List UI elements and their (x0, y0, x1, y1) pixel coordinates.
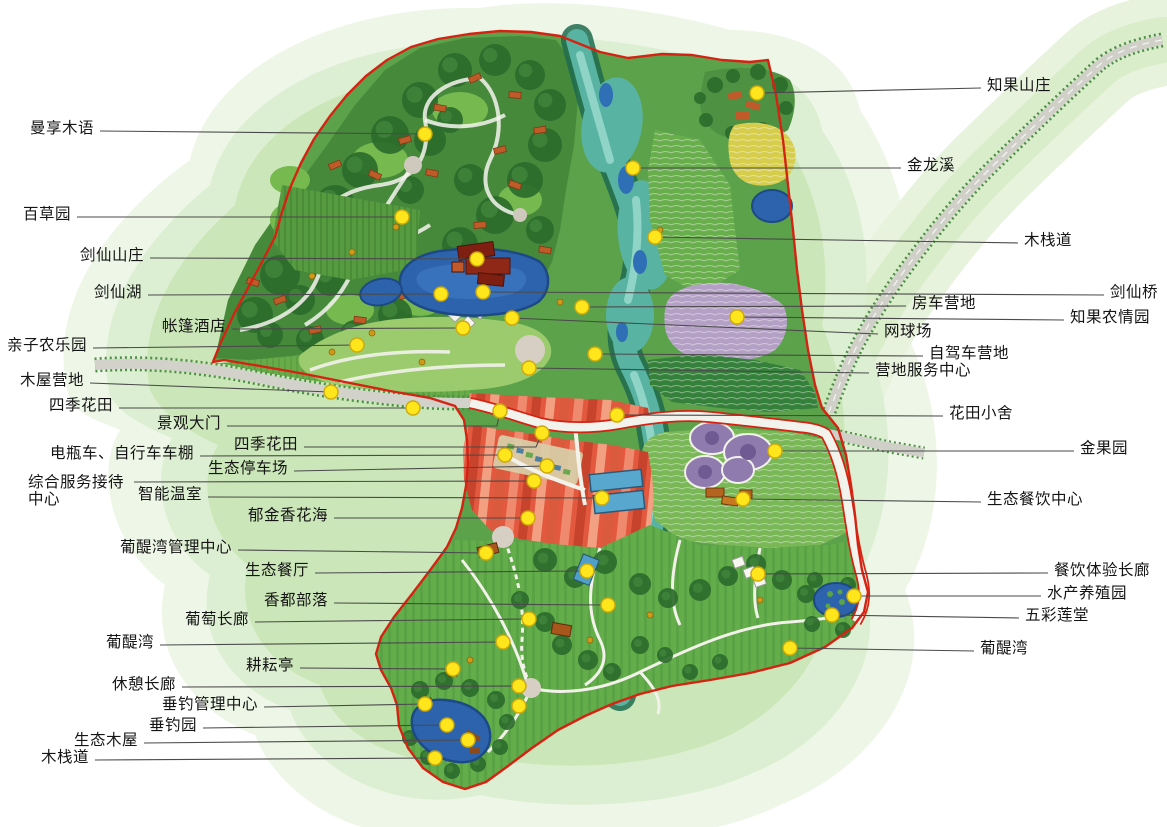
map-label: 休憩长廊 (112, 676, 176, 693)
map-label: 剑仙桥 (1110, 284, 1158, 301)
poi-marker (626, 161, 640, 175)
poi-marker (522, 361, 536, 375)
map-label: 生态餐厅 (245, 562, 309, 579)
poi-marker (575, 300, 589, 314)
poi-marker (324, 385, 338, 399)
poi-marker (750, 86, 764, 100)
poi-marker (595, 491, 609, 505)
map-label: 金龙溪 (907, 157, 955, 174)
poi-marker (434, 287, 448, 301)
map-label: 知果山庄 (987, 77, 1051, 94)
poi-marker (527, 474, 541, 488)
map-label: 葡醍湾管理中心 (120, 539, 232, 556)
poi-marker (512, 699, 526, 713)
map-label: 帐篷酒店 (162, 318, 226, 335)
map-label: 营地服务中心 (875, 362, 971, 379)
poi-marker (476, 285, 490, 299)
poi-marker (610, 408, 624, 422)
map-label: 景观大门 (157, 415, 221, 432)
map-label: 垂钓园 (149, 717, 197, 734)
map-label: 垂钓管理中心 (162, 696, 258, 713)
map-label: 电瓶车、自行车车棚 (50, 445, 194, 462)
map-label: 亲子农乐园 (7, 337, 87, 354)
poi-marker (406, 401, 420, 415)
map-label: 生态木屋 (74, 732, 138, 749)
map-label: 葡萄长廊 (185, 611, 249, 628)
poi-marker (440, 718, 454, 732)
poi-marker (456, 321, 470, 335)
poi-marker (461, 733, 475, 747)
map-label: 木栈道 (41, 749, 89, 766)
poi-marker (505, 311, 519, 325)
poi-marker (418, 697, 432, 711)
map-label: 剑仙山庄 (80, 247, 144, 264)
map-label: 知果农情园 (1070, 309, 1150, 326)
map-label: 自驾车营地 (929, 345, 1009, 362)
map-label: 四季花田 (49, 397, 113, 414)
map-label: 木栈道 (1024, 232, 1072, 249)
poi-marker (521, 511, 535, 525)
poi-marker (428, 751, 442, 765)
map-label: 四季花田 (234, 436, 298, 453)
poi-marker (498, 448, 512, 462)
map-label: 网球场 (884, 323, 932, 340)
poi-marker (648, 230, 662, 244)
map-label: 葡醍湾 (106, 634, 154, 651)
map-label: 百草园 (23, 206, 71, 223)
poi-marker (350, 338, 364, 352)
map-label: 综合服务接待中心 (28, 474, 124, 508)
map-label: 葡醍湾 (980, 640, 1028, 657)
poi-marker (588, 347, 602, 361)
map-label: 水产养殖园 (1047, 585, 1127, 602)
map-label: 曼享木语 (30, 120, 94, 137)
poi-marker (768, 444, 782, 458)
poi-marker (535, 426, 549, 440)
map-label: 木屋营地 (20, 372, 84, 389)
poi-marker (751, 567, 765, 581)
poi-marker (783, 641, 797, 655)
poi-marker (470, 252, 484, 266)
poi-marker (847, 589, 861, 603)
poi-marker (730, 310, 744, 324)
map-label: 耕耘亭 (246, 657, 294, 674)
map-label: 智能温室 (138, 486, 202, 503)
site-plan-map: 曼享木语百草园剑仙山庄剑仙湖帐篷酒店亲子农乐园木屋营地四季花田景观大门四季花田电… (0, 0, 1167, 827)
map-label: 生态餐饮中心 (987, 491, 1083, 508)
map-label: 五彩莲堂 (1025, 607, 1089, 624)
poi-marker (736, 492, 750, 506)
poi-marker (522, 612, 536, 626)
map-label: 生态停车场 (208, 460, 288, 477)
poi-marker (395, 210, 409, 224)
map-label: 剑仙湖 (94, 284, 142, 301)
poi-marker (512, 679, 526, 693)
map-label: 餐饮体验长廊 (1054, 562, 1150, 579)
map-label: 金果园 (1080, 440, 1128, 457)
poi-marker (825, 608, 839, 622)
poi-marker (496, 635, 510, 649)
orchard (642, 422, 853, 548)
poi-marker (601, 598, 615, 612)
map-label: 郁金香花海 (248, 507, 328, 524)
poi-marker (540, 459, 554, 473)
map-label: 花田小舍 (949, 405, 1013, 422)
poi-marker (479, 546, 493, 560)
poi-marker (446, 662, 460, 676)
poi-marker (418, 127, 432, 141)
map-label: 香都部落 (264, 592, 328, 609)
poi-marker (493, 404, 507, 418)
map-label: 房车营地 (912, 295, 976, 312)
poi-marker (580, 564, 594, 578)
